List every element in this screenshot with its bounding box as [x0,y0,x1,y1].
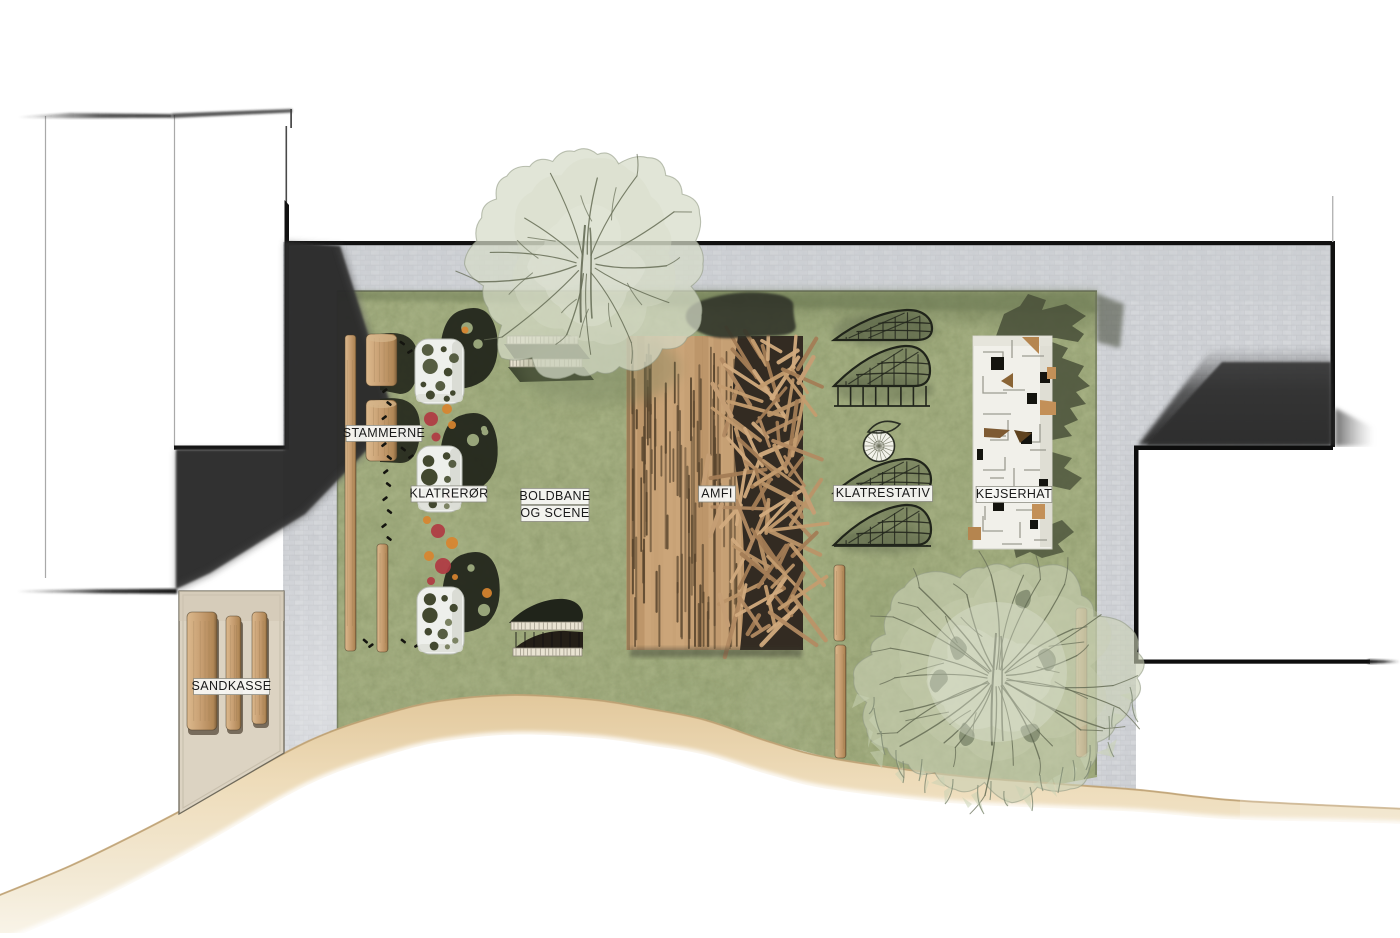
svg-text:OG SCENE: OG SCENE [520,506,589,520]
svg-text:KLATRESTATIV: KLATRESTATIV [836,486,931,500]
svg-text:BOLDBANE: BOLDBANE [519,489,590,503]
svg-text:STAMMERNE: STAMMERNE [343,426,426,440]
svg-text:KEJSERHAT: KEJSERHAT [976,487,1052,501]
svg-text:KLATRERØR: KLATRERØR [409,486,488,500]
svg-text:AMFI: AMFI [701,486,732,500]
svg-text:SANDKASSE: SANDKASSE [191,679,271,693]
